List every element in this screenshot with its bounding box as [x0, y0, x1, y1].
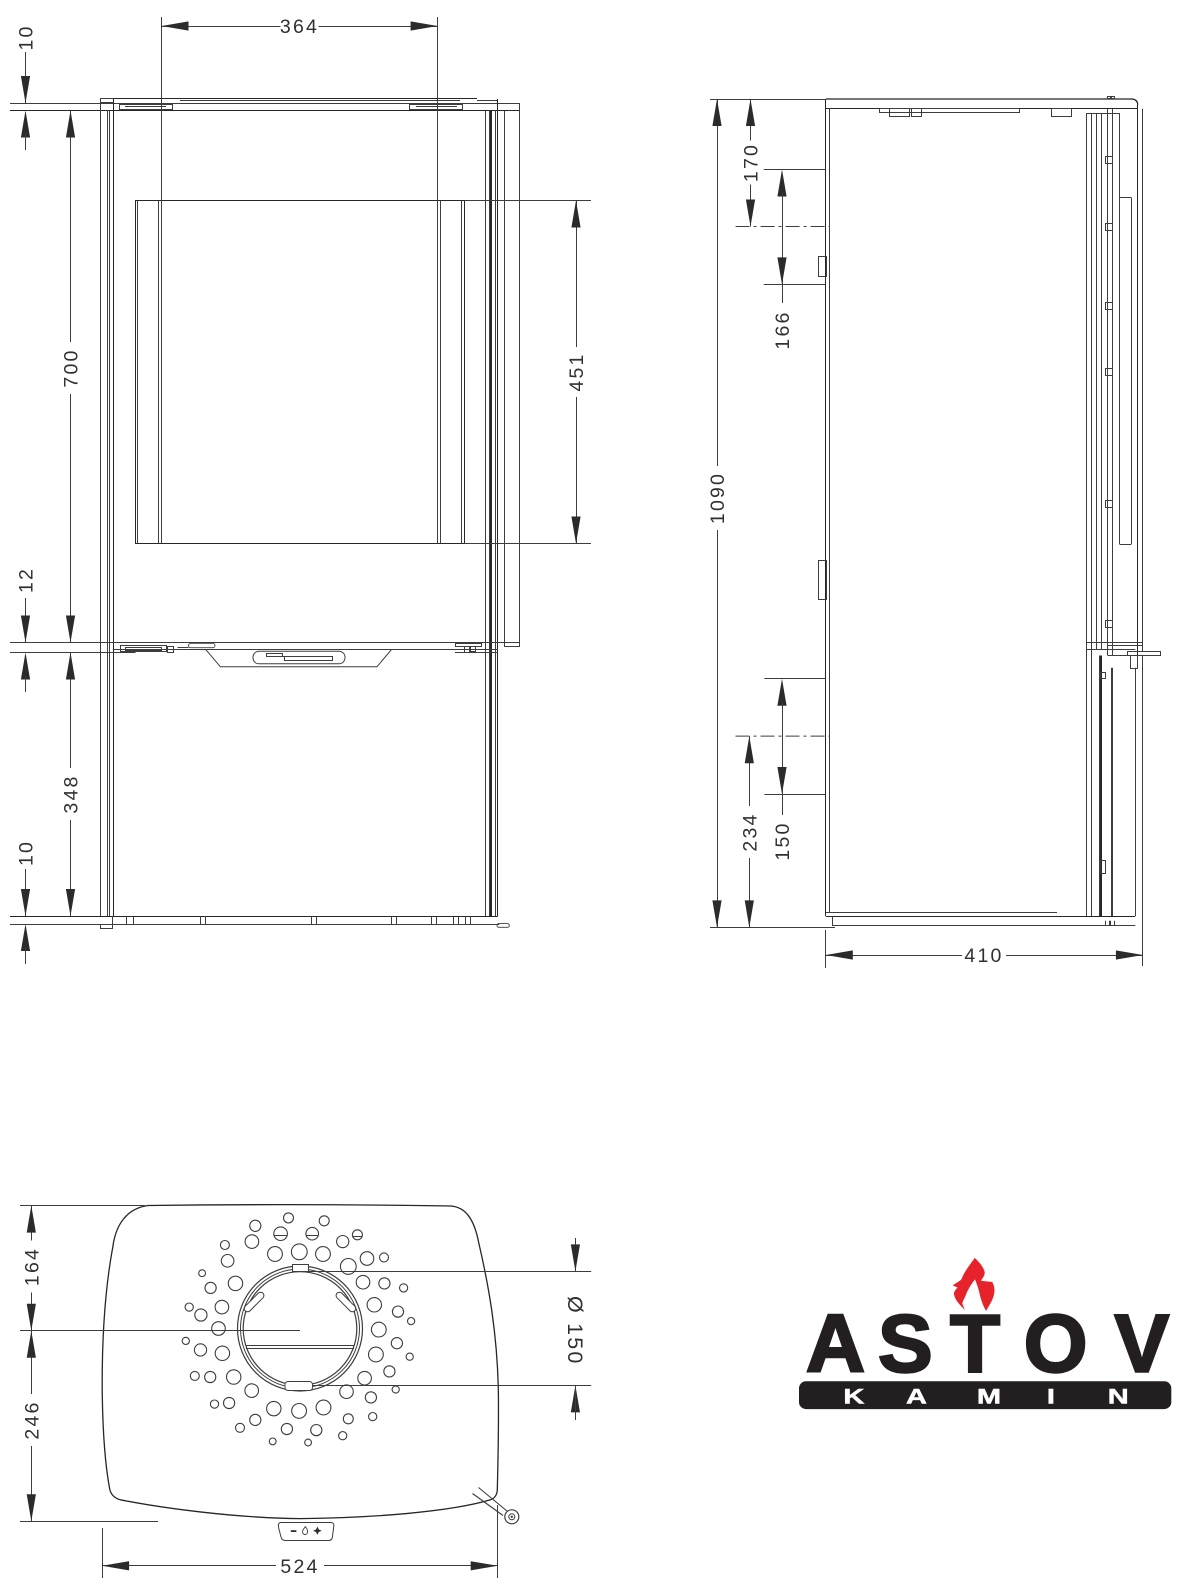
- svg-text:12: 12: [16, 567, 38, 593]
- svg-text:A: A: [806, 1299, 865, 1390]
- svg-text:700: 700: [61, 348, 83, 387]
- svg-text:S: S: [878, 1299, 933, 1390]
- svg-text:170: 170: [741, 143, 763, 182]
- svg-text:150: 150: [772, 821, 794, 860]
- svg-text:Ø 150: Ø 150: [563, 1296, 587, 1366]
- svg-text:234: 234: [739, 812, 761, 851]
- svg-text:A: A: [906, 1385, 927, 1409]
- svg-text:410: 410: [964, 945, 1003, 967]
- svg-text:246: 246: [21, 1400, 43, 1439]
- svg-text:10: 10: [16, 840, 38, 866]
- svg-text:O: O: [1024, 1299, 1088, 1390]
- svg-text:N: N: [1108, 1385, 1129, 1409]
- svg-text:364: 364: [280, 16, 319, 38]
- svg-text:166: 166: [772, 310, 794, 349]
- svg-text:524: 524: [280, 1556, 319, 1578]
- svg-text:451: 451: [566, 352, 588, 391]
- svg-text:1090: 1090: [707, 472, 729, 524]
- svg-text:M: M: [977, 1385, 1001, 1409]
- svg-text:V: V: [1114, 1299, 1169, 1390]
- svg-text:I: I: [1047, 1385, 1055, 1409]
- svg-text:164: 164: [21, 1247, 43, 1286]
- svg-text:T: T: [950, 1299, 1000, 1390]
- svg-text:10: 10: [16, 24, 38, 50]
- svg-text:K: K: [843, 1385, 865, 1409]
- svg-text:348: 348: [61, 774, 83, 813]
